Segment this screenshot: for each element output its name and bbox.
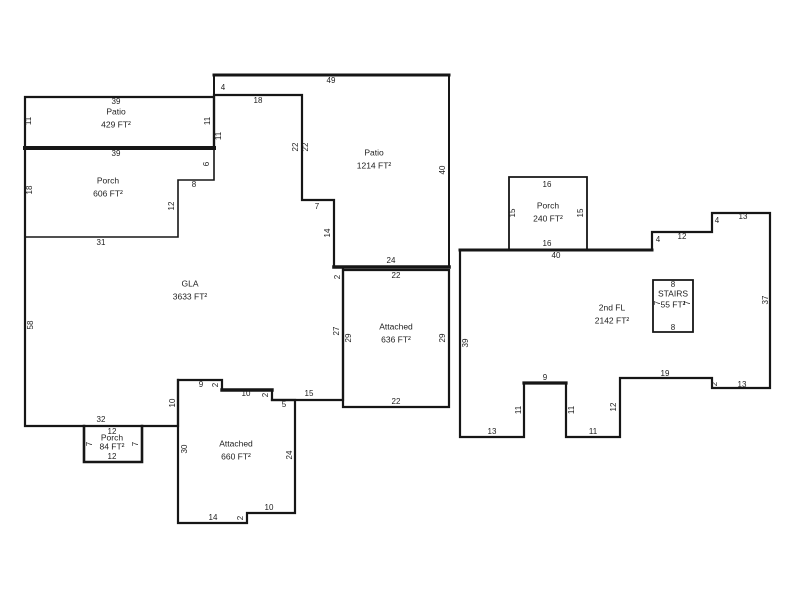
room-area: 660 FT² [221,451,251,461]
dimension-label: 7 [131,441,140,446]
dimension-label: 9 [543,373,548,382]
dimension-label: 27 [332,326,341,335]
room-name: Porch [537,200,559,210]
dimension-label: 15 [576,208,585,217]
dimension-label: 40 [552,251,561,260]
dimension-label: 4 [715,216,720,225]
room-name: Porch [97,175,119,185]
dimension-label: 10 [242,389,251,398]
dimension-label: 24 [285,450,294,459]
room-name: GLA [181,278,198,288]
dimension-label: 6 [202,161,211,166]
dimension-label: 11 [589,427,598,436]
dimension-label: 22 [392,397,401,406]
walls-layer [25,75,770,523]
dimension-label: 2 [333,274,342,279]
room-name: Patio [364,147,384,157]
dimension-label: 9 [199,380,204,389]
dimension-label: 40 [438,165,447,174]
room-area: 3633 FT² [173,291,208,301]
room-patio-top: Patio1214 FT² [357,147,392,170]
room-attached-right: Attached636 FT² [379,321,413,344]
dimension-label: 37 [761,295,770,304]
room-second-floor: 2nd FL2142 FT² [595,302,630,325]
dimension-label: 39 [112,97,121,106]
room-area: 1214 FT² [357,160,392,170]
dimension-label: 5 [282,400,287,409]
dimension-label: 10 [168,398,177,407]
dimension-label: 11 [514,405,523,414]
room-gla: GLA3633 FT² [173,278,208,301]
dimension-label: 2 [261,392,270,397]
dimension-label: 29 [344,333,353,342]
dimension-label: 7 [85,441,94,446]
labels-layer: 3911113918681231494181122227144024222272… [24,76,770,522]
room-porch-2nd: Porch240 FT² [533,200,563,223]
room-name: Patio [106,106,126,116]
dimension-label: 13 [738,380,747,389]
dimension-label: 12 [108,452,117,461]
room-area: 240 FT² [533,213,563,223]
room-name: 2nd FL [599,302,626,312]
room-stairs: STAIRS55 FT² [658,288,688,309]
room-area: 429 FT² [101,119,131,129]
dimension-label: 10 [265,503,274,512]
dimension-label: 22 [301,142,310,151]
dimension-label: 31 [97,238,106,247]
dimension-label: 4 [221,83,226,92]
room-area: 55 FT² [660,299,685,309]
dimension-label: 12 [678,232,687,241]
dimension-label: 15 [508,208,517,217]
dimension-label: 8 [671,323,676,332]
dimension-label: 12 [167,201,176,210]
dimension-label: 22 [291,142,300,151]
room-name: STAIRS [658,288,688,298]
room-name: Attached [219,438,253,448]
dimension-label: 7 [315,202,320,211]
dimension-label: 11 [214,131,223,140]
room-area: 606 FT² [93,188,123,198]
room-porch-small: Porch84 FT² [99,432,124,451]
dimension-label: 29 [438,333,447,342]
dimension-label: 58 [26,320,35,329]
room-porch-left: Porch606 FT² [93,175,123,198]
dimension-label: 18 [25,185,34,194]
room-attached-bottom: Attached660 FT² [219,438,253,461]
floor-plan-canvas: 3911113918681231494181122227144024222272… [0,0,800,600]
room-name: Attached [379,321,413,331]
dimension-label: 11 [203,116,212,125]
dimension-label: 2 [710,381,719,386]
room-area: 84 FT² [99,441,124,451]
dimension-label: 13 [739,212,748,221]
floor-plan: 3911113918681231494181122227144024222272… [0,0,800,600]
dimension-label: 14 [209,513,218,522]
room-area: 636 FT² [381,334,411,344]
dimension-label: 11 [24,116,33,125]
dimension-label: 2 [211,382,220,387]
room-area: 2142 FT² [595,315,630,325]
dimension-label: 11 [567,405,576,414]
dimension-label: 39 [112,149,121,158]
dimension-label: 13 [488,427,497,436]
room-patio-upper-left: Patio429 FT² [101,106,131,129]
dimension-label: 16 [543,239,552,248]
dimension-label: 18 [254,96,263,105]
dimension-label: 22 [392,271,401,280]
dimension-label: 8 [192,180,197,189]
dimension-label: 49 [327,76,336,85]
dimension-label: 14 [323,228,332,237]
dimension-label: 19 [661,369,670,378]
dimension-label: 30 [180,444,189,453]
dimension-label: 15 [305,389,314,398]
dimension-label: 32 [97,415,106,424]
dimension-label: 16 [543,180,552,189]
dimension-label: 39 [461,338,470,347]
dimension-label: 4 [656,235,661,244]
dimension-label: 2 [236,515,245,520]
dimension-label: 12 [609,402,618,411]
dimension-label: 24 [387,256,396,265]
